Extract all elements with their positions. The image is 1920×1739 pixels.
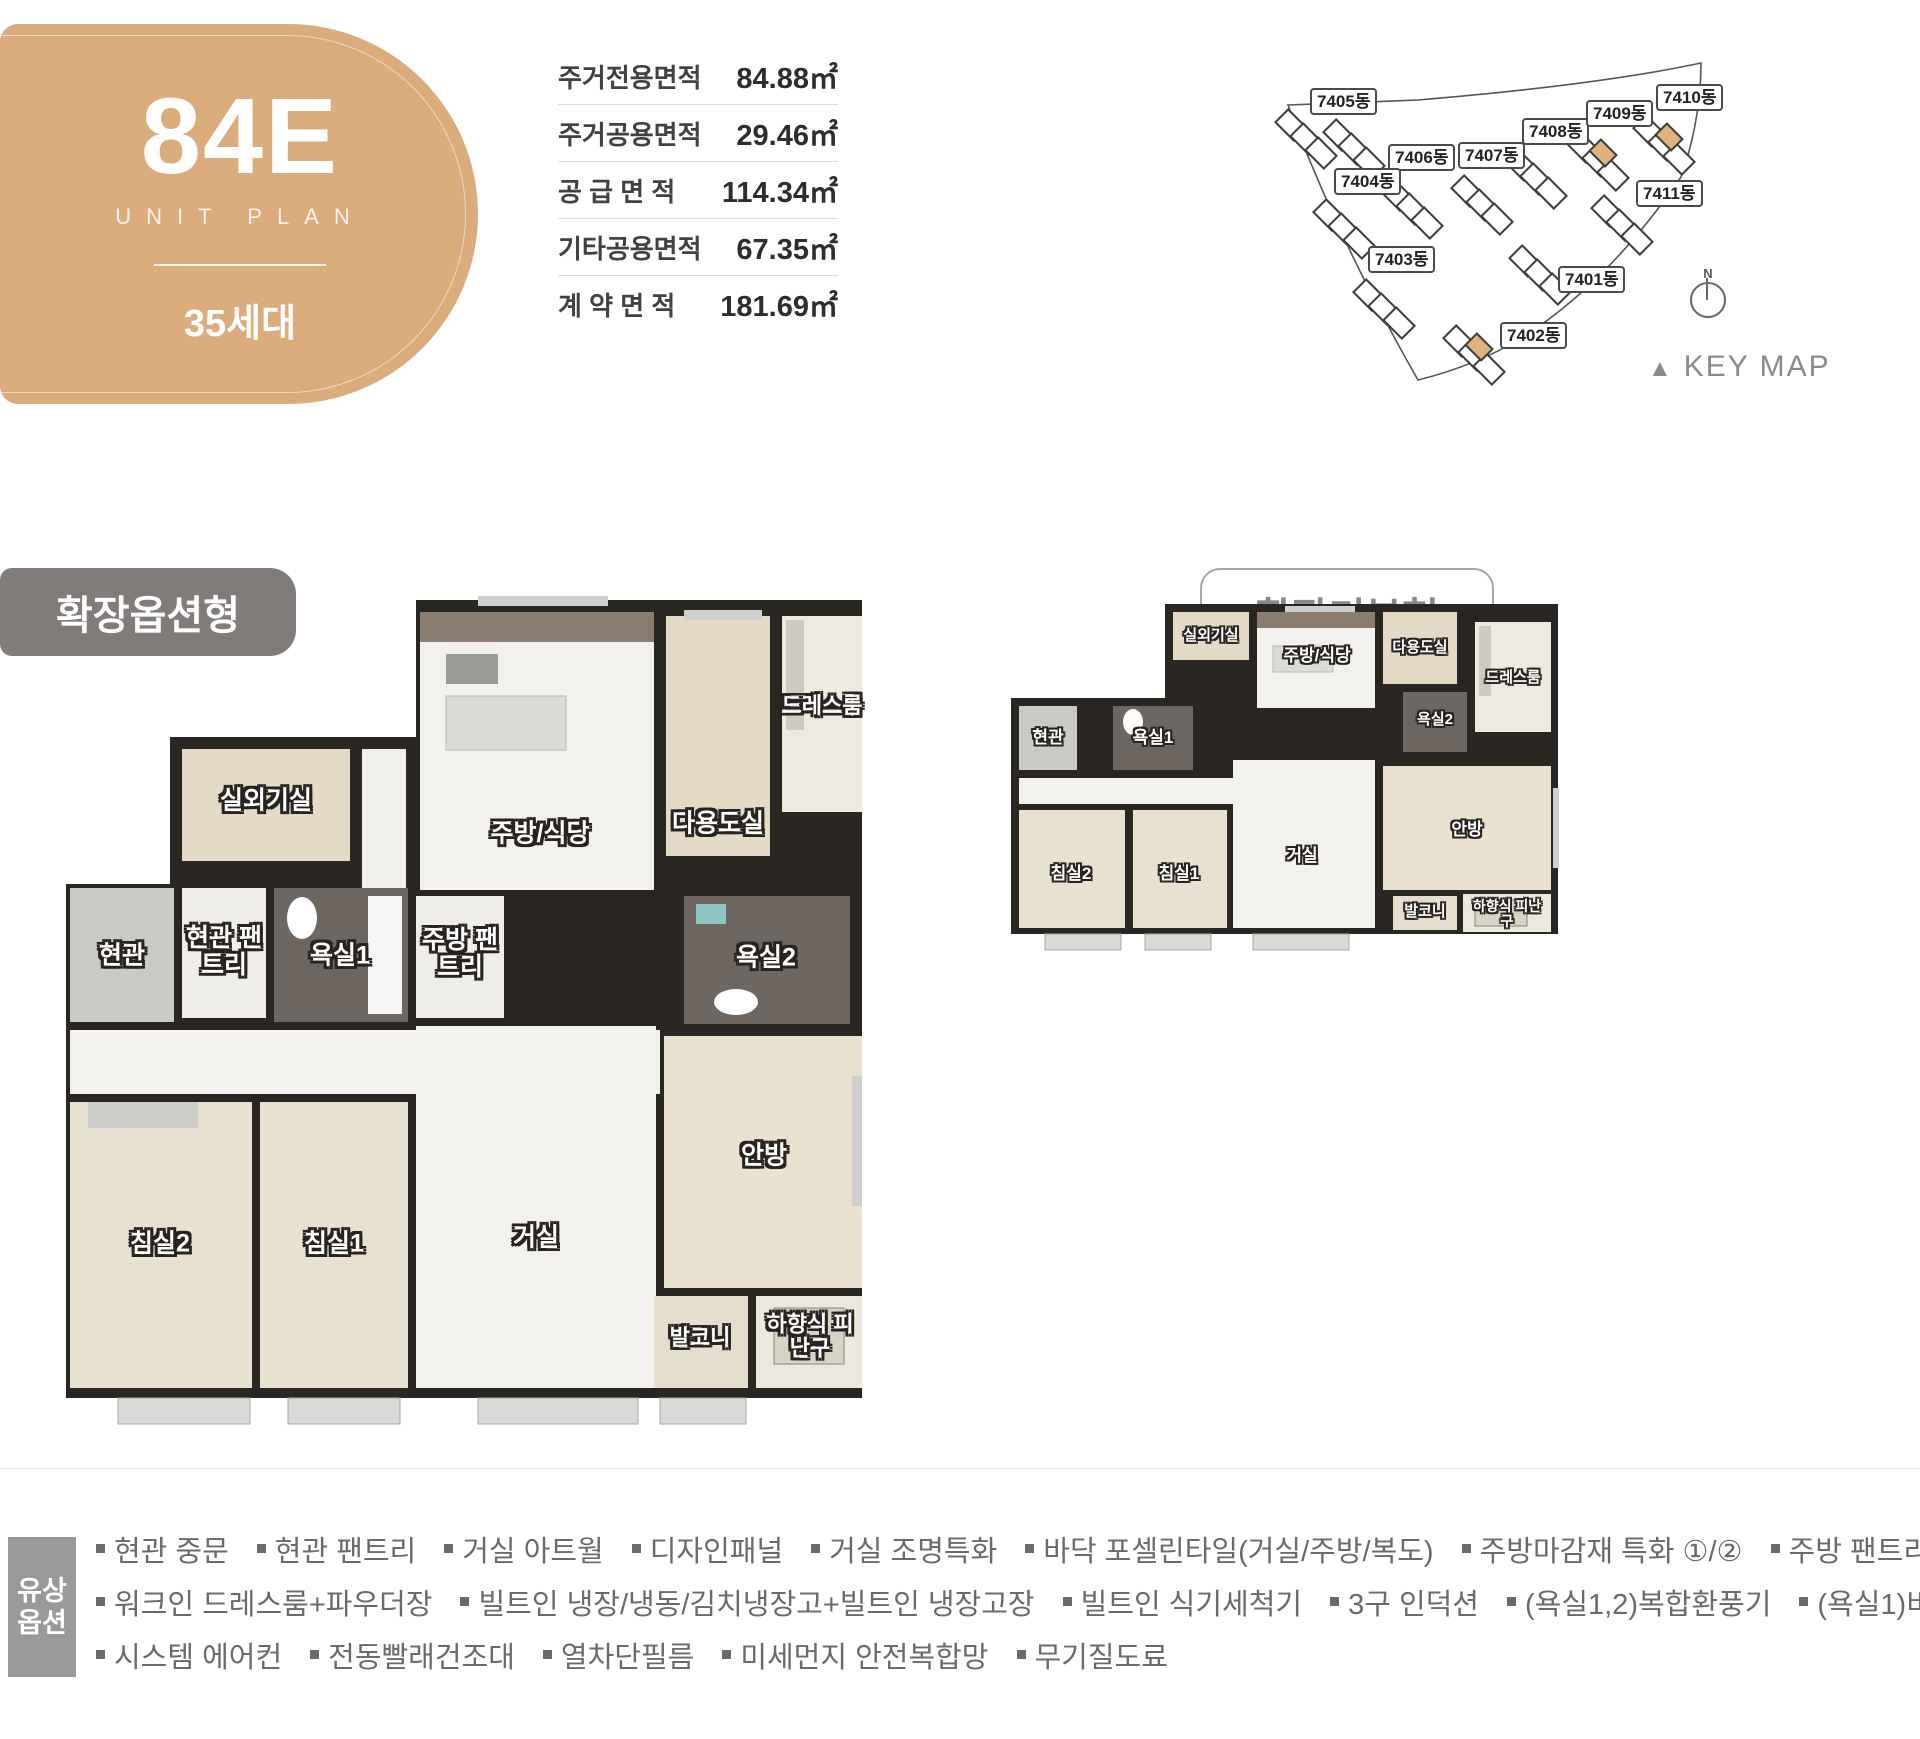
- room-label-master: 안방: [741, 1143, 787, 1170]
- room-label-kitchen-pantry: 주방 팬트리: [414, 927, 506, 981]
- key-map-caption: ▲KEY MAP: [1648, 350, 1831, 384]
- unit-type-badge: 84E UNIT PLAN 35세대: [0, 24, 478, 404]
- option-item: 전동빨래건조대: [310, 1634, 515, 1676]
- option-item: (욕실1)비데: [1799, 1581, 1920, 1623]
- option-item: 현관 중문: [96, 1528, 229, 1570]
- paid-options-label-line: 옵션: [17, 1607, 67, 1639]
- room-label-utility: 다용도실: [672, 811, 764, 838]
- option-item: 무기질도료: [1017, 1634, 1168, 1676]
- room-label-dressroom: 드레스룸: [782, 694, 863, 718]
- area-table: 주거전용면적 84.88㎡ 주거공용면적 29.46㎡ 공 급 면 적 114.…: [558, 48, 838, 332]
- room-label-bath2: 욕실2: [736, 945, 796, 972]
- bullet-icon: [1017, 1650, 1026, 1659]
- room-label-balcony: 발코니: [1404, 904, 1445, 920]
- building-label: 7409동: [1586, 100, 1653, 127]
- room-label-escape-hatch: 하향식 피난구: [762, 1312, 858, 1360]
- bullet-icon: [1507, 1597, 1516, 1606]
- room-label-bath1: 욕실1: [310, 943, 370, 970]
- room-label-bed1: 침실1: [304, 1231, 364, 1258]
- bullet-icon: [96, 1650, 105, 1659]
- room-label-foyer: 현관: [1032, 729, 1063, 747]
- building-label: 7410동: [1656, 84, 1723, 111]
- room-label-foyer: 현관: [99, 943, 145, 970]
- option-item: 미세먼지 안전복합망: [722, 1634, 988, 1676]
- room-label-bath1: 욕실1: [1133, 729, 1174, 747]
- paid-options-list: 현관 중문 현관 팬트리 거실 아트월 디자인패널 거실 조명특화 바닥 포셀린…: [96, 1522, 1920, 1681]
- option-item: 바닥 포셀린타일(거실/주방/복도): [1025, 1528, 1433, 1570]
- household-count: 35세대: [184, 292, 296, 347]
- room-label-living: 거실: [1286, 847, 1317, 865]
- area-row-label: 계 약 면 적: [558, 286, 675, 323]
- building-label: 7405동: [1310, 88, 1377, 115]
- paid-options-label-line: 유상: [17, 1575, 67, 1607]
- area-row-value: 67.35㎡: [736, 226, 838, 268]
- bullet-icon: [722, 1650, 731, 1659]
- building-label: 7402동: [1500, 322, 1567, 349]
- area-row-label: 공 급 면 적: [558, 172, 675, 209]
- room-label-dressroom: 드레스룸: [1485, 670, 1540, 686]
- bullet-icon: [257, 1544, 266, 1553]
- section-divider: [0, 1468, 1920, 1469]
- bullet-icon: [632, 1544, 641, 1553]
- paid-options-label: 유상 옵션: [8, 1537, 76, 1677]
- room-label-utility: 다용도실: [1392, 640, 1447, 656]
- key-map-caption-text: KEY MAP: [1684, 350, 1831, 383]
- bullet-icon: [96, 1597, 105, 1606]
- triangle-icon: ▲: [1648, 355, 1674, 382]
- room-label-outdoor-unit: 실외기실: [1183, 628, 1238, 644]
- room-label-living: 거실: [513, 1225, 559, 1252]
- room-label-bed1: 침실1: [1159, 865, 1200, 883]
- room-label-kitchen: 주방/식당: [491, 821, 590, 848]
- options-row: 시스템 에어컨 전동빨래건조대 열차단필름 미세먼지 안전복합망 무기질도료: [96, 1628, 1920, 1681]
- room-label-outdoor-unit: 실외기실: [220, 788, 312, 815]
- building-label: 7403동: [1368, 246, 1435, 273]
- room-label-kitchen: 주방/식당: [1283, 647, 1350, 665]
- table-row: 주거전용면적 84.88㎡: [558, 48, 838, 105]
- area-row-value: 181.69㎡: [720, 283, 838, 325]
- area-row-label: 주거공용면적: [558, 115, 702, 152]
- building-label: 7408동: [1522, 118, 1589, 145]
- building-label: 7407동: [1458, 142, 1525, 169]
- room-label-bed2: 침실2: [130, 1231, 190, 1258]
- bullet-icon: [811, 1544, 820, 1553]
- area-row-label: 기타공용면적: [558, 229, 702, 266]
- option-item: 열차단필름: [543, 1634, 694, 1676]
- bullet-icon: [1799, 1597, 1808, 1606]
- building-label: 7406동: [1388, 144, 1455, 171]
- option-item: 3구 인덕션: [1330, 1581, 1479, 1623]
- floorplan-svg: [48, 596, 866, 1434]
- building-label: 7411동: [1636, 180, 1703, 207]
- bullet-icon: [444, 1544, 453, 1553]
- room-label-escape-hatch: 하향식 피난구: [1471, 899, 1543, 929]
- bullet-icon: [96, 1544, 105, 1553]
- bullet-icon: [460, 1597, 469, 1606]
- option-item: 주방 팬트리: [1771, 1528, 1920, 1570]
- compass-circle: [1690, 282, 1726, 318]
- bullet-icon: [1330, 1597, 1339, 1606]
- compass-icon: N: [1688, 268, 1728, 318]
- option-item: (욕실1,2)복합환풍기: [1507, 1581, 1771, 1623]
- table-row: 기타공용면적 67.35㎡: [558, 219, 838, 276]
- area-row-label: 주거전용면적: [558, 58, 702, 95]
- unit-type-code: 84E: [141, 82, 339, 190]
- unit-plan-subtitle: UNIT PLAN: [115, 204, 365, 230]
- option-item: 거실 조명특화: [811, 1528, 997, 1570]
- floorplan-extended-option: 실외기실 주방/식당 다용도실 드레스룸 주방 팬트리 현관 현관 팬트리 욕실…: [48, 596, 866, 1434]
- room-label-balcony: 발코니: [670, 1326, 731, 1350]
- table-row: 공 급 면 적 114.34㎡: [558, 162, 838, 219]
- area-row-value: 114.34㎡: [722, 169, 838, 211]
- building-label: 7404동: [1334, 168, 1401, 195]
- options-row: 워크인 드레스룸+파우더장 빌트인 냉장/냉동/김치냉장고+빌트인 냉장고장 빌…: [96, 1575, 1920, 1628]
- option-item: 거실 아트월: [444, 1528, 603, 1570]
- bullet-icon: [543, 1650, 552, 1659]
- badge-divider: [154, 264, 326, 266]
- area-row-value: 84.88㎡: [736, 55, 838, 97]
- bullet-icon: [310, 1650, 319, 1659]
- option-item: 디자인패널: [632, 1528, 783, 1570]
- area-row-value: 29.46㎡: [736, 112, 838, 154]
- building-label: 7401동: [1558, 266, 1625, 293]
- bullet-icon: [1462, 1544, 1471, 1553]
- room-label-foyer-pantry: 현관 팬트리: [180, 925, 268, 979]
- option-item: 빌트인 식기세척기: [1063, 1581, 1303, 1623]
- bullet-icon: [1771, 1544, 1780, 1553]
- bullet-icon: [1063, 1597, 1072, 1606]
- table-row: 주거공용면적 29.46㎡: [558, 105, 838, 162]
- key-map: 7405동 7406동 7407동 7408동 7409동 7410동 7411…: [1268, 50, 1916, 400]
- option-item: 빌트인 냉장/냉동/김치냉장고+빌트인 냉장고장: [460, 1581, 1034, 1623]
- compass-north-label: N: [1688, 268, 1728, 280]
- room-label-master: 안방: [1451, 821, 1482, 839]
- option-item: 현관 팬트리: [257, 1528, 416, 1570]
- room-label-bath2: 욕실2: [1417, 712, 1453, 728]
- bullet-icon: [1025, 1544, 1034, 1553]
- option-item: 시스템 에어컨: [96, 1634, 282, 1676]
- options-row: 현관 중문 현관 팬트리 거실 아트월 디자인패널 거실 조명특화 바닥 포셀린…: [96, 1522, 1920, 1575]
- option-item: 주방마감재 특화 ①/②: [1462, 1528, 1743, 1570]
- table-row: 계 약 면 적 181.69㎡: [558, 276, 838, 332]
- unit-plan-page: { "unit_badge": { "code": "84E", "subtit…: [0, 0, 1920, 1739]
- floorplan-extended-basic: 실외기실 주방/식당 다용도실 드레스룸 현관 욕실1 욕실2 안방 거실 침실…: [1005, 598, 1563, 966]
- room-label-bed2: 침실2: [1051, 865, 1092, 883]
- option-item: 워크인 드레스룸+파우더장: [96, 1581, 432, 1623]
